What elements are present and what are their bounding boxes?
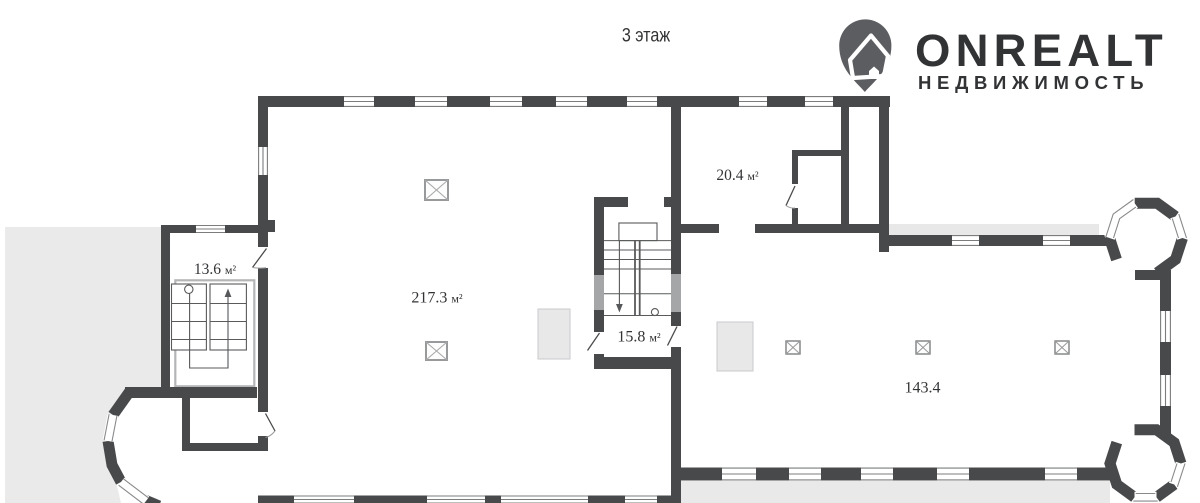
svg-text:НЕДВИЖИМОСТЬ: НЕДВИЖИМОСТЬ	[918, 72, 1149, 93]
svg-text:ONREALT: ONREALT	[915, 25, 1168, 76]
svg-text:15.8 м²: 15.8 м²	[617, 329, 661, 346]
svg-text:20.4 м²: 20.4 м²	[716, 167, 759, 184]
svg-text:3 этаж: 3 этаж	[622, 24, 671, 46]
svg-text:143.4: 143.4	[905, 380, 941, 397]
svg-text:13.6 м²: 13.6 м²	[194, 261, 237, 278]
svg-text:217.3 м²: 217.3 м²	[411, 290, 463, 307]
